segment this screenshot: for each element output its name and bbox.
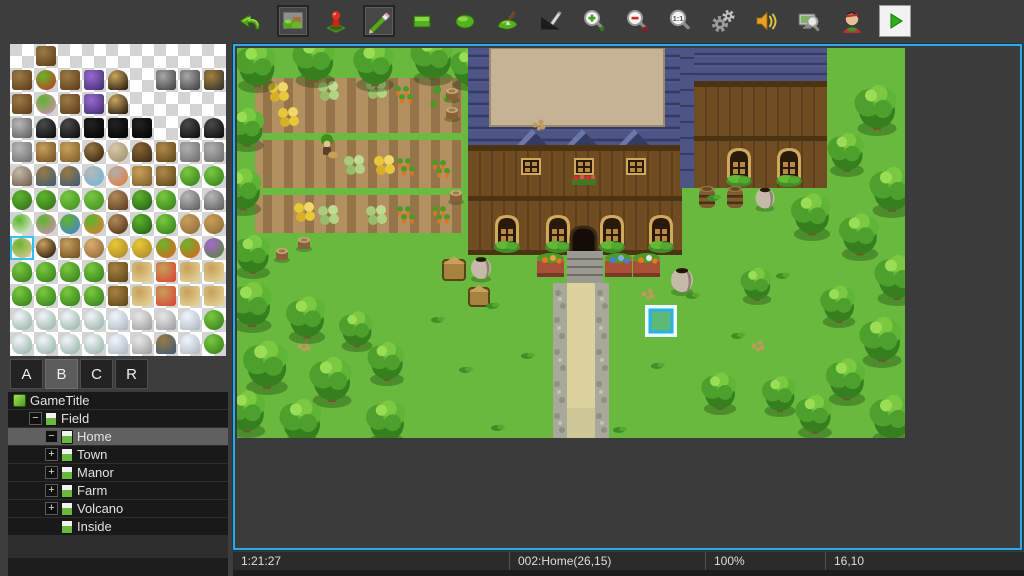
palette-tile-sign[interactable] <box>34 140 58 164</box>
pencil-tool-button[interactable] <box>363 5 395 37</box>
map-tree-item-field[interactable]: −Field <box>8 410 228 427</box>
palette-tile-crate[interactable] <box>202 284 226 308</box>
map-icon <box>61 448 73 462</box>
palette-tile-crate[interactable] <box>178 284 202 308</box>
palette-tile-black[interactable] <box>130 116 154 140</box>
palette-tile-win[interactable] <box>178 68 202 92</box>
palette-tile-empty[interactable] <box>130 44 154 68</box>
palette-tile-sapl[interactable] <box>154 236 178 260</box>
palette-tile-stump[interactable] <box>106 188 130 212</box>
status-map-info: 002:Home(26,15) <box>509 552 705 570</box>
status-bar: 1:21:27 002:Home(26,15) 100% 16,10 <box>233 552 1024 570</box>
map-tree-label: Manor <box>77 465 114 480</box>
palette-tile-well[interactable] <box>10 140 34 164</box>
undo-button[interactable] <box>234 5 266 37</box>
sound-test-button[interactable] <box>750 5 782 37</box>
palette-tile-win[interactable] <box>154 68 178 92</box>
palette-tab-C[interactable]: C <box>80 359 113 389</box>
palette-tile-gate[interactable] <box>58 140 82 164</box>
map-icon <box>45 412 57 426</box>
palette-tile-cap[interactable] <box>34 116 58 140</box>
character-generator-button[interactable] <box>836 5 868 37</box>
zoom-actual-button[interactable]: 1:1 <box>664 5 696 37</box>
palette-tile-spring[interactable] <box>82 164 106 188</box>
palette-tile-crater[interactable] <box>154 284 178 308</box>
expand-icon[interactable]: + <box>45 502 58 515</box>
palette-tile-wood[interactable] <box>58 236 82 260</box>
map-tree-label: Field <box>61 411 89 426</box>
palette-tile-conetree[interactable] <box>130 188 154 212</box>
palette-tile-arch[interactable] <box>106 92 130 116</box>
palette-tile-log[interactable] <box>106 212 130 236</box>
ellipse-icon <box>452 8 478 34</box>
palette-tile-crate[interactable] <box>130 284 154 308</box>
map-icon <box>61 520 73 534</box>
flood-fill-tool-button[interactable] <box>492 5 524 37</box>
palette-tile-shrine[interactable] <box>202 140 226 164</box>
playtest-button[interactable] <box>879 5 911 37</box>
palette-tile-conetree[interactable] <box>130 212 154 236</box>
palette-tile-cropy[interactable] <box>106 236 130 260</box>
map-tree-label: Town <box>77 447 107 462</box>
main-house <box>468 48 682 255</box>
map-tree-item-farm[interactable]: +Farm <box>8 482 228 499</box>
flood-fill-icon <box>495 8 521 34</box>
map-tree: GameTitle−Field−Home+Town+Manor+Farm+Vol… <box>8 392 228 558</box>
palette-tile-empty[interactable] <box>106 44 130 68</box>
palette-tile-empty[interactable] <box>154 92 178 116</box>
palette-tile-leaves[interactable] <box>58 188 82 212</box>
palette-tile-snowtree[interactable] <box>10 332 34 356</box>
right-building <box>694 48 827 212</box>
palette-tile-bigtree[interactable] <box>34 284 58 308</box>
palette-tile-sprout[interactable] <box>202 308 226 332</box>
event-mode-icon <box>323 8 349 34</box>
map-tree-item-volcano[interactable]: +Volcano <box>8 500 228 517</box>
palette-tile-bigtree[interactable] <box>82 284 106 308</box>
expand-icon[interactable]: + <box>45 466 58 479</box>
palette-tile-black[interactable] <box>82 116 106 140</box>
palette-tile-rock[interactable] <box>202 188 226 212</box>
map-tree-label: Farm <box>77 483 107 498</box>
map-tree-label: Inside <box>77 519 112 534</box>
flower-box <box>572 175 596 186</box>
palette-tile-snowtree[interactable] <box>82 308 106 332</box>
find-button[interactable] <box>793 5 825 37</box>
palette-tile-acorn[interactable] <box>82 236 106 260</box>
palette-tile-empty[interactable] <box>202 92 226 116</box>
palette-tile-bucket[interactable] <box>154 332 178 356</box>
map-canvas[interactable] <box>233 44 1022 550</box>
map-icon <box>61 484 73 498</box>
palette-tile-awning[interactable] <box>202 68 226 92</box>
wooden-sign <box>443 256 465 280</box>
palette-tile-black[interactable] <box>106 116 130 140</box>
map-mode-icon <box>280 8 306 34</box>
farm-field <box>255 78 462 233</box>
palette-tile-empty[interactable] <box>178 44 202 68</box>
palette-tile-empty[interactable] <box>10 44 34 68</box>
status-zoom: 100% <box>705 552 825 570</box>
rectangle-tool-button[interactable] <box>406 5 438 37</box>
palette-tile-door[interactable] <box>34 44 58 68</box>
palette-tile-bucket[interactable] <box>58 164 82 188</box>
palette-tile-empty[interactable] <box>178 92 202 116</box>
palette-tile-rock[interactable] <box>178 188 202 212</box>
palette-tabs: ABCR <box>10 359 148 389</box>
palette-tile-bigtree[interactable] <box>10 260 34 284</box>
palette-tile-shrine[interactable] <box>178 140 202 164</box>
palette-tile-leaves[interactable] <box>82 188 106 212</box>
ellipse-tool-button[interactable] <box>449 5 481 37</box>
palette-tile-plank[interactable] <box>106 260 130 284</box>
palette-tile-wjar[interactable] <box>130 332 154 356</box>
palette-tab-B[interactable]: B <box>45 359 78 389</box>
map-tree-item-town[interactable]: +Town <box>8 446 228 463</box>
undo-icon <box>237 8 263 34</box>
map-icon <box>61 430 73 444</box>
palette-tile-totem[interactable] <box>154 140 178 164</box>
event-mode-button[interactable] <box>320 5 352 37</box>
palette-tile-gate[interactable] <box>130 164 154 188</box>
character-icon <box>839 8 865 34</box>
wooden-sign-2 <box>469 285 489 306</box>
palette-tile-flp[interactable] <box>34 92 58 116</box>
map-tree-item-manor[interactable]: +Manor <box>8 464 228 481</box>
palette-tile-sprout[interactable] <box>202 332 226 356</box>
palette-tab-R[interactable]: R <box>115 359 148 389</box>
map-icon <box>61 502 73 516</box>
palette-tile-snowtree[interactable] <box>58 332 82 356</box>
palette-tile-totem[interactable] <box>154 164 178 188</box>
palette-tile-snowtree[interactable] <box>34 308 58 332</box>
expand-icon[interactable]: + <box>45 484 58 497</box>
palette-tile-barrel[interactable] <box>130 140 154 164</box>
toolbar: 1:1 <box>0 0 1024 44</box>
palette-tile-crate[interactable] <box>178 260 202 284</box>
palette-tile-empty[interactable] <box>154 44 178 68</box>
expand-icon[interactable]: + <box>45 448 58 461</box>
window-footer <box>233 570 1024 576</box>
palette-tile-glass[interactable] <box>82 92 106 116</box>
palette-tile-door[interactable] <box>58 68 82 92</box>
map-mode-button[interactable] <box>277 5 309 37</box>
palette-tile-empty[interactable] <box>154 116 178 140</box>
palette-tile-pipes[interactable] <box>10 116 34 140</box>
palette-tile-snow[interactable] <box>106 308 130 332</box>
palette-tab-A[interactable]: A <box>10 359 43 389</box>
palette-tile-glass[interactable] <box>82 68 106 92</box>
palette-tile-fire[interactable] <box>106 164 130 188</box>
palette-tile-grape[interactable] <box>202 236 226 260</box>
palette-tile-roundtree[interactable] <box>154 188 178 212</box>
palette-tile-empty[interactable] <box>130 68 154 92</box>
palette-tile-bigtree[interactable] <box>34 260 58 284</box>
palette-tile-bigtree[interactable] <box>58 260 82 284</box>
palette-tile-snowtree[interactable] <box>10 308 34 332</box>
palette-tile-tuft[interactable] <box>34 188 58 212</box>
status-coords: 16,10 <box>825 552 1024 570</box>
palette-tile-bigtree[interactable] <box>10 284 34 308</box>
palette-tile-flp[interactable] <box>34 212 58 236</box>
play-icon <box>882 8 908 34</box>
database-button[interactable] <box>707 5 739 37</box>
palette-tile-sprout[interactable] <box>178 164 202 188</box>
pencil-icon <box>366 8 392 34</box>
palette-tile-tuft[interactable] <box>10 188 34 212</box>
palette-tile-nest[interactable] <box>34 236 58 260</box>
palette-tile-bucket[interactable] <box>34 164 58 188</box>
status-time: 1:21:27 <box>233 552 509 570</box>
zoom-in-button[interactable] <box>578 5 610 37</box>
zoom-in-icon <box>581 8 607 34</box>
palette-tile-dirt[interactable] <box>202 212 226 236</box>
palette-tile-empty[interactable] <box>82 44 106 68</box>
gears-icon <box>710 8 736 34</box>
map-tree-item-inside[interactable]: Inside <box>8 518 228 535</box>
palette-tile-bigtree[interactable] <box>82 260 106 284</box>
collapse-icon[interactable]: − <box>45 430 58 443</box>
speaker-icon <box>753 8 779 34</box>
palette-tile-door[interactable] <box>10 92 34 116</box>
palette-tile-flo[interactable] <box>82 212 106 236</box>
rpg-maker-editor-window: 1:1 <box>0 0 1024 576</box>
shadow-pen-tool-button[interactable] <box>535 5 567 37</box>
zoom-out-icon <box>624 8 650 34</box>
palette-tile-plates[interactable] <box>106 140 130 164</box>
palette-tile-door[interactable] <box>58 92 82 116</box>
map-tree-item-gametitle[interactable]: GameTitle <box>8 392 228 409</box>
palette-tile-cap[interactable] <box>178 116 202 140</box>
collapse-icon[interactable]: − <box>29 412 42 425</box>
map-tree-item-home[interactable]: −Home <box>8 428 228 445</box>
palette-tile-empty[interactable] <box>58 44 82 68</box>
palette-tile-plank[interactable] <box>106 284 130 308</box>
palette-tile-crater[interactable] <box>154 260 178 284</box>
map-tree-label: Home <box>77 429 112 444</box>
map-render <box>237 48 905 438</box>
map-tree-label: GameTitle <box>30 393 89 408</box>
palette-tile-flb[interactable] <box>58 212 82 236</box>
shadow-pen-icon <box>538 8 564 34</box>
palette-tile-crate[interactable] <box>202 260 226 284</box>
map-icon <box>61 466 73 480</box>
zoom-out-button[interactable] <box>621 5 653 37</box>
palette-tile-arch[interactable] <box>106 68 130 92</box>
palette-tile-cap[interactable] <box>58 116 82 140</box>
palette-tile-snowtree[interactable] <box>34 332 58 356</box>
palette-tile-doll[interactable] <box>10 236 34 260</box>
palette-tile-snowtree[interactable] <box>58 308 82 332</box>
project-icon <box>13 394 26 407</box>
palette-tile-crate[interactable] <box>130 260 154 284</box>
palette-tile-snow[interactable] <box>178 308 202 332</box>
palette-tile-cap[interactable] <box>202 116 226 140</box>
zoom-actual-icon: 1:1 <box>667 8 693 34</box>
palette-tile-cropy[interactable] <box>130 236 154 260</box>
palette-tile-empty[interactable] <box>202 44 226 68</box>
palette-tile-wjar[interactable] <box>130 308 154 332</box>
palette-tile-bigtree[interactable] <box>58 284 82 308</box>
palette-tile-wjar[interactable] <box>154 308 178 332</box>
svg-text:1:1: 1:1 <box>673 14 684 23</box>
tileset-palette[interactable] <box>10 44 226 356</box>
palette-tile-empty[interactable] <box>130 92 154 116</box>
palette-tile-flw[interactable] <box>10 212 34 236</box>
palette-tile-snow[interactable] <box>106 332 130 356</box>
palette-tile-dirt[interactable] <box>178 212 202 236</box>
screen-search-icon <box>796 8 822 34</box>
map-tree-label: Volcano <box>77 501 123 516</box>
palette-tile-basin[interactable] <box>82 140 106 164</box>
palette-tile-jarg[interactable] <box>10 164 34 188</box>
palette-tile-snowtree[interactable] <box>82 332 106 356</box>
palette-tile-snow[interactable] <box>178 332 202 356</box>
tree-panel-footer <box>8 558 228 576</box>
palette-tile-roundtree[interactable] <box>154 212 178 236</box>
stone-path <box>553 283 609 438</box>
palette-tile-door[interactable] <box>10 68 34 92</box>
palette-tile-bushred[interactable] <box>34 68 58 92</box>
palette-tile-sapl[interactable] <box>178 236 202 260</box>
tile-cursor <box>647 307 675 335</box>
palette-tile-sprout[interactable] <box>202 164 226 188</box>
rectangle-icon <box>409 8 435 34</box>
